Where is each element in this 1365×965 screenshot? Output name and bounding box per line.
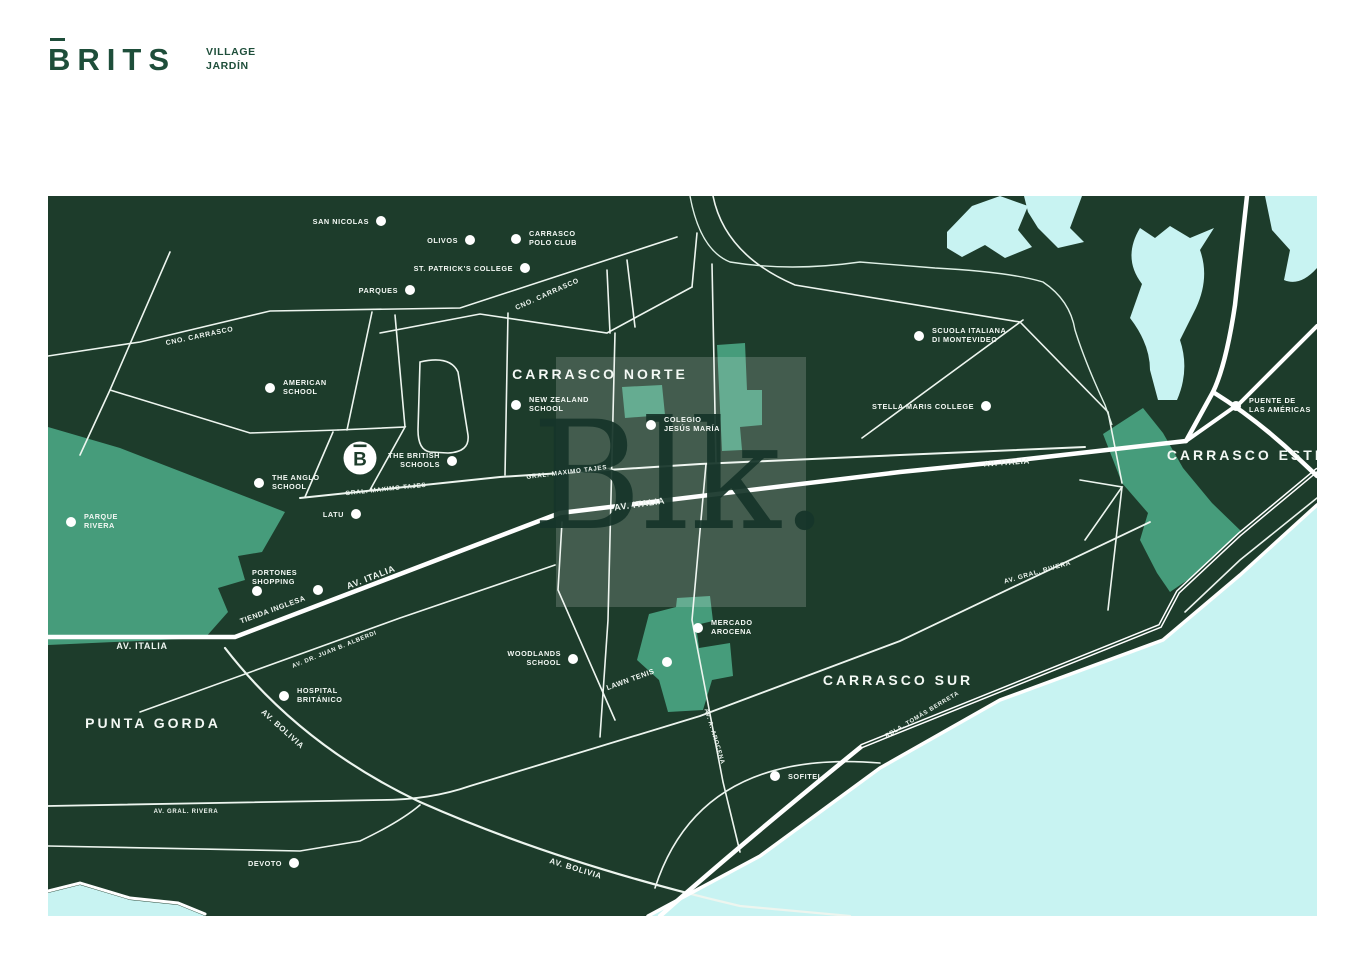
- poi-label-latu: LATU: [323, 510, 344, 519]
- poi-label-parques: PARQUES: [359, 286, 398, 295]
- tagline-line-2: JARDÍN: [206, 60, 249, 72]
- marker-macron-bar: [354, 445, 367, 448]
- poi-dot-parques: [405, 285, 415, 295]
- brand-text: BRITS: [48, 42, 176, 77]
- poi-dot-colegio-jesus-maria: [646, 420, 656, 430]
- poi-label-line: ST. PATRICK'S COLLEGE: [414, 264, 513, 273]
- poi-label-line: COLEGIO: [664, 415, 702, 424]
- poi-label-line: NEW ZEALAND: [529, 395, 589, 404]
- poi-label-portones-shopping: PORTONESSHOPPING: [252, 568, 297, 586]
- poi-label-line: AMERICAN: [283, 378, 327, 387]
- poi-label-san-nicolas: SAN NICOLAS: [313, 217, 369, 226]
- poi-label-line: MERCADO: [711, 618, 753, 627]
- poi-label-line: JESÚS MARÍA: [664, 424, 720, 433]
- poi-label-line: STELLA MARIS COLLEGE: [872, 402, 974, 411]
- poi-dot-carrasco-polo-club: [511, 234, 521, 244]
- poi-label-line: PARQUES: [359, 286, 398, 295]
- brand-logo: BRITS VILLAGE JARDÍN: [48, 42, 256, 78]
- poi-dot-lawn-tenis: [662, 657, 672, 667]
- poi-label-line: OLIVOS: [427, 236, 458, 245]
- district-label-carrasco-este: CARRASCO ESTE: [1167, 447, 1317, 463]
- poi-label-line: AROCENA: [711, 627, 752, 636]
- poi-label-line: SCHOOL: [283, 387, 318, 396]
- poi-label-carrasco-polo-club: CARRASCOPOLO CLUB: [529, 229, 577, 247]
- poi-dot-tienda-inglesa: [313, 585, 323, 595]
- poi-label-stella-maris-college: STELLA MARIS COLLEGE: [872, 402, 974, 411]
- poi-label-line: PORTONES: [252, 568, 297, 577]
- location-map: Blk. B CNO. CARRASCOCNO. CARRASCOGRAL. M…: [48, 196, 1317, 916]
- poi-dot-woodlands-school: [568, 654, 578, 664]
- tagline-line-1: VILLAGE: [206, 46, 256, 58]
- poi-dot-mercado-arocena: [693, 623, 703, 633]
- poi-label-line: SCHOOL: [529, 404, 564, 413]
- road-label-11: AV. GRAL. RIVERA: [154, 809, 219, 815]
- poi-label-line: BRITÁNICO: [297, 695, 343, 704]
- district-label-carrasco-norte: CARRASCO NORTE: [512, 366, 688, 382]
- brits-map-marker[interactable]: B: [344, 442, 377, 475]
- poi-label-line: WOODLANDS: [507, 649, 561, 658]
- poi-label-st-patricks-college: ST. PATRICK'S COLLEGE: [414, 264, 513, 273]
- poi-dot-the-british-schools: [447, 456, 457, 466]
- poi-label-line: THE ANGLO: [272, 473, 320, 482]
- poi-label-line: SOFITEL: [788, 772, 823, 781]
- location-map-svg: Blk. B CNO. CARRASCOCNO. CARRASCOGRAL. M…: [48, 196, 1317, 916]
- brand-tagline: VILLAGE JARDÍN: [206, 45, 256, 73]
- poi-label-hospital-britanico: HOSPITALBRITÁNICO: [297, 686, 343, 704]
- poi-dot-olivos: [465, 235, 475, 245]
- poi-label-mercado-arocena: MERCADOAROCENA: [711, 618, 753, 636]
- poi-label-sofitel: SOFITEL: [788, 772, 823, 781]
- poi-label-line: HOSPITAL: [297, 686, 338, 695]
- poi-label-parque-rivera: PARQUERIVERA: [84, 512, 118, 530]
- poi-dot-scuola-italiana: [914, 331, 924, 341]
- poi-label-line: SAN NICOLAS: [313, 217, 369, 226]
- poi-dot-latu: [351, 509, 361, 519]
- poi-dot-san-nicolas: [376, 216, 386, 226]
- district-label-punta-gorda: PUNTA GORDA: [85, 715, 221, 731]
- poi-label-line: SCHOOL: [272, 482, 307, 491]
- poi-dot-puente-de-las-americas: [1231, 401, 1241, 411]
- poi-dot-parque-rivera: [66, 517, 76, 527]
- poi-dot-hospital-britanico: [279, 691, 289, 701]
- poi-dot-sofitel: [770, 771, 780, 781]
- poi-label-scuola-italiana: SCUOLA ITALIANADI MONTEVIDEO: [932, 326, 1007, 344]
- poi-label-line: LAS AMÉRICAS: [1249, 405, 1311, 414]
- marker-letter: B: [353, 450, 367, 471]
- poi-dot-the-anglo-school: [254, 478, 264, 488]
- poi-label-line: SCHOOL: [526, 658, 561, 667]
- page: BRITS VILLAGE JARDÍN: [0, 0, 1365, 965]
- district-label-carrasco-sur: CARRASCO SUR: [823, 672, 973, 688]
- poi-label-line: PUENTE DE: [1249, 396, 1296, 405]
- poi-dot-st-patricks-college: [520, 263, 530, 273]
- brand-macron-bar: [50, 38, 65, 41]
- poi-label-olivos: OLIVOS: [427, 236, 458, 245]
- poi-label-devoto: DEVOTO: [248, 859, 282, 868]
- poi-dot-portones-shopping: [252, 586, 262, 596]
- poi-label-line: DEVOTO: [248, 859, 282, 868]
- poi-label-line: SCUOLA ITALIANA: [932, 326, 1007, 335]
- poi-dot-new-zealand-school: [511, 400, 521, 410]
- poi-label-line: LATU: [323, 510, 344, 519]
- poi-label-line: CARRASCO: [529, 229, 576, 238]
- poi-label-line: SHOPPING: [252, 577, 295, 586]
- poi-dot-american-school: [265, 383, 275, 393]
- poi-label-line: SCHOOLS: [400, 460, 440, 469]
- poi-label-line: POLO CLUB: [529, 238, 577, 247]
- poi-label-line: THE BRITISH: [388, 451, 440, 460]
- poi-label-line: RIVERA: [84, 521, 115, 530]
- poi-label-line: DI MONTEVIDEO: [932, 335, 998, 344]
- poi-label-line: PARQUE: [84, 512, 118, 521]
- road-label-4: AV. ITALIA: [116, 641, 167, 651]
- brand-name: BRITS: [48, 42, 176, 78]
- poi-dot-stella-maris-college: [981, 401, 991, 411]
- poi-dot-devoto: [289, 858, 299, 868]
